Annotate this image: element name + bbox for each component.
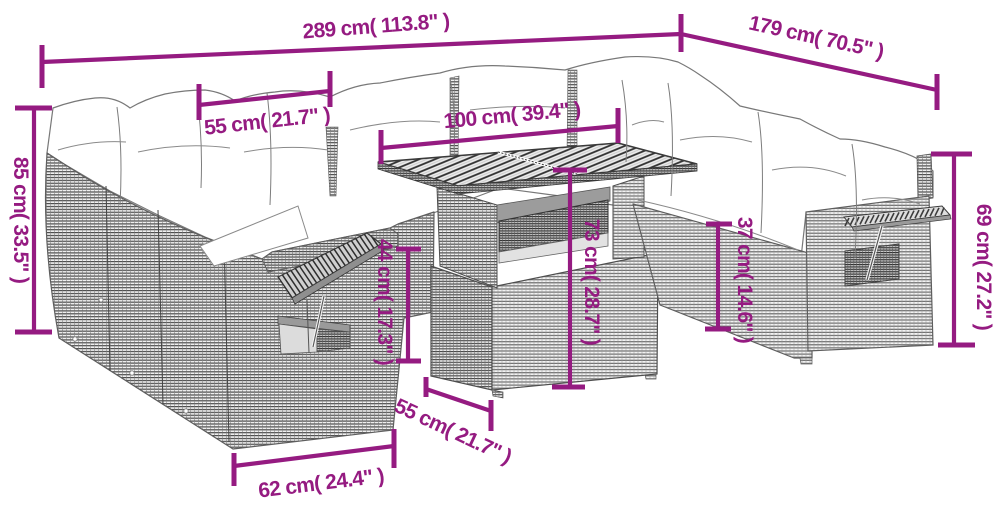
svg-text:69 cm( 27.2" ): 69 cm( 27.2" ) <box>972 204 995 330</box>
svg-text:44 cm( 17.3" ): 44 cm( 17.3" ) <box>373 239 396 365</box>
svg-text:37 cm( 14.6" ): 37 cm( 14.6" ) <box>733 217 756 343</box>
svg-text:85 cm( 33.5" ): 85 cm( 33.5" ) <box>9 157 32 283</box>
svg-text:73 cm( 28.7" ): 73 cm( 28.7" ) <box>580 219 603 345</box>
